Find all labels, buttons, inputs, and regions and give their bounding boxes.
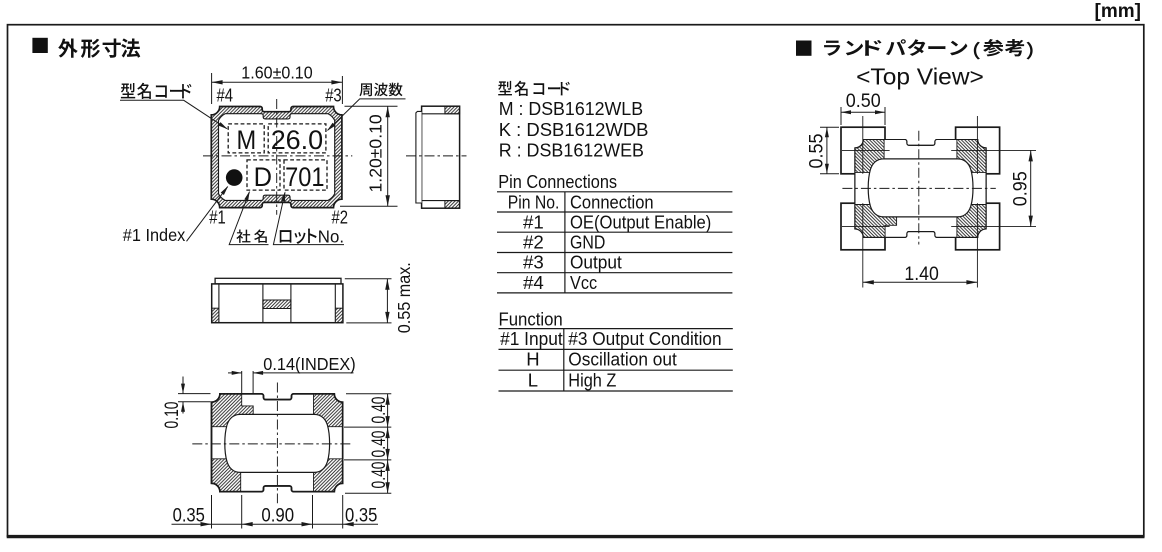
svg-text:0.55: 0.55 [807,134,828,169]
svg-text:M : DSB1612WLB: M : DSB1612WLB [499,98,643,119]
svg-text:Pin Connections: Pin Connections [498,171,617,192]
svg-text:0.10: 0.10 [162,402,183,429]
svg-text:#3: #3 [325,85,342,105]
svg-text:#1 Index: #1 Index [123,225,186,245]
svg-text:#2: #2 [332,208,349,228]
svg-text:0.35: 0.35 [345,506,377,527]
svg-text:No.: No. [318,227,344,247]
svg-text:Pin No.: Pin No. [508,191,560,212]
svg-text:<Top View>: <Top View> [856,64,984,90]
svg-text:Oscillation out: Oscillation out [568,349,677,370]
svg-text:0.40: 0.40 [369,397,390,424]
svg-text:0.40: 0.40 [369,462,390,489]
svg-text:1.40: 1.40 [904,264,938,285]
svg-text:0.35: 0.35 [173,506,205,527]
svg-text:OE(Output Enable): OE(Output Enable) [570,211,711,232]
svg-text:Vcc: Vcc [570,272,597,293]
svg-text:#4: #4 [523,272,544,293]
svg-text:701: 701 [285,162,324,192]
svg-text:26.0: 26.0 [271,125,324,155]
svg-text:M: M [237,125,257,155]
svg-text:#1: #1 [523,211,544,232]
svg-text:#1 Input: #1 Input [500,328,563,349]
svg-text:1.20±0.10: 1.20±0.10 [366,114,386,192]
svg-text:#3: #3 [523,252,544,273]
svg-text:0.14(INDEX): 0.14(INDEX) [263,354,355,374]
svg-text:H: H [526,349,539,370]
svg-text:#1: #1 [209,208,226,228]
svg-text:L: L [528,369,538,390]
svg-text:1.60±0.10: 1.60±0.10 [241,63,313,83]
svg-text:0.50: 0.50 [846,91,881,112]
svg-text:0.55 max.: 0.55 max. [394,262,414,333]
svg-text:K : DSB1612WDB: K : DSB1612WDB [499,119,649,140]
svg-text:#2: #2 [523,232,544,253]
svg-text:Connection: Connection [570,191,654,212]
svg-text:R : DSB1612WEB: R : DSB1612WEB [499,140,644,161]
svg-text:0.95: 0.95 [1010,171,1031,206]
svg-text:Output: Output [570,252,622,273]
svg-text:#4: #4 [217,85,234,105]
svg-text:Function: Function [499,308,563,329]
svg-text:High Z: High Z [568,369,616,390]
svg-text:#3 Output Condition: #3 Output Condition [568,328,721,349]
svg-text:0.40: 0.40 [369,431,390,458]
svg-text:GND: GND [570,232,605,253]
svg-text:[mm]: [mm] [1095,1,1141,22]
svg-text:D: D [254,162,272,192]
svg-text:0.90: 0.90 [261,506,294,527]
